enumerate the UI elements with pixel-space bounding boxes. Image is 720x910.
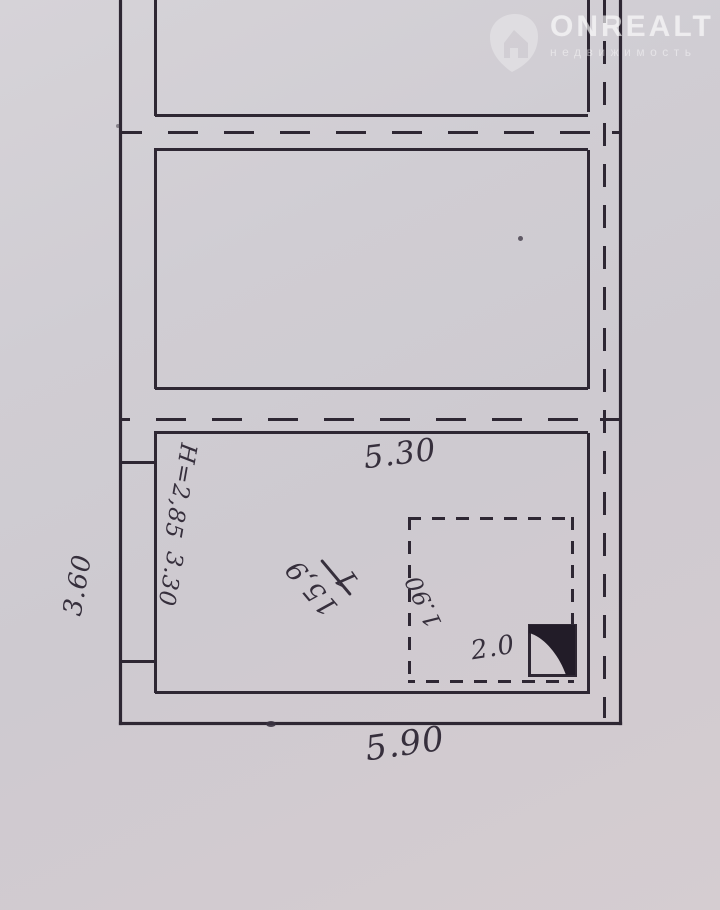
wall-band1-bottom <box>155 148 588 151</box>
floor-plan-scan: 5.30 5.90 3.60 Н=2,85 3.30 15,9 1 1.90 2… <box>0 0 720 910</box>
wall-left-inner-low <box>154 431 157 693</box>
map-pin-house-icon <box>486 12 542 74</box>
dimension-width-top: 5.30 <box>328 428 471 481</box>
ink-speck <box>116 124 120 128</box>
wall-band2-centerline-dashed <box>120 418 620 421</box>
watermark: ONREALT недвижимость <box>486 12 714 74</box>
wall-right-centerline-dashed <box>603 0 606 718</box>
ink-speck <box>518 236 523 241</box>
wall-band1-top <box>155 114 588 117</box>
wall-right-inner-low <box>587 433 590 693</box>
dimension-height-left: 3.60 <box>56 543 99 627</box>
wall-left-outer <box>119 0 122 725</box>
wall-left-inner-top <box>154 0 157 116</box>
wall-right-outer <box>619 0 622 725</box>
wall-band2-top <box>155 387 588 390</box>
watermark-brand-text: ONREALT <box>550 12 714 42</box>
ink-speck <box>266 721 276 727</box>
dimension-stove-width: 2.0 <box>456 628 530 669</box>
wall-bottom-outer <box>119 722 622 725</box>
wall-left-tick-upper <box>119 461 157 464</box>
wall-right-inner-mid <box>587 150 590 389</box>
wall-bottom-inner <box>155 691 590 694</box>
watermark-subtitle-text: недвижимость <box>550 45 697 59</box>
niche-bottom-dashed <box>408 680 574 683</box>
wall-left-inner-mid <box>154 148 157 389</box>
wall-band2-bottom <box>155 431 588 434</box>
wall-band1-centerline-dashed <box>120 131 620 134</box>
niche-top-dashed <box>408 517 574 520</box>
dimension-niche-depth: 1.90 <box>395 559 452 642</box>
wall-left-tick-lower <box>119 660 157 663</box>
stove-symbol <box>528 624 578 678</box>
